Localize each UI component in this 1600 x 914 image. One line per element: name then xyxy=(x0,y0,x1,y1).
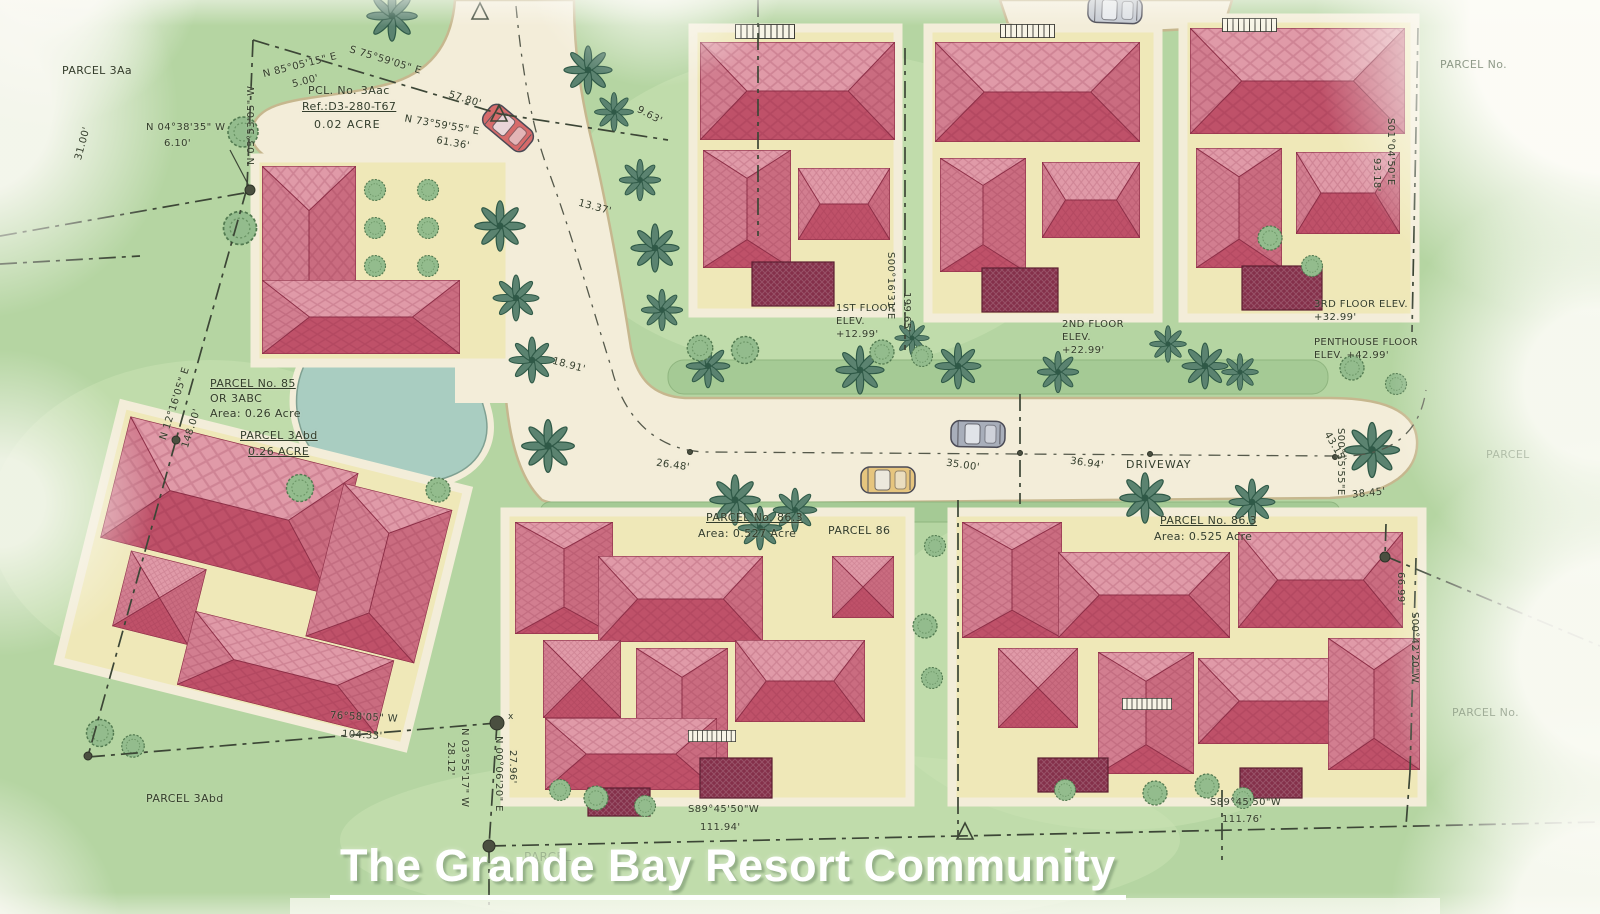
round-tree-icon xyxy=(1302,256,1323,277)
stairs-icon xyxy=(1222,18,1276,32)
parcel-label: PARCEL xyxy=(1486,448,1530,461)
parcel-label: Ref.:D3-280-T67 xyxy=(302,100,396,113)
parcel-label: PARCEL No. 85 xyxy=(210,377,296,390)
site-plan-map: PARCEL 3Aa N 03°53'05" W 31.00' N 85°05'… xyxy=(0,0,1600,914)
palm-tree-icon xyxy=(367,0,417,41)
round-tree-icon xyxy=(913,614,937,638)
palm-tree-icon xyxy=(1037,351,1078,392)
palm-tree-icon xyxy=(631,224,679,272)
round-tree-icon xyxy=(550,780,571,801)
dimension-label: 28.12' xyxy=(445,742,456,776)
parcel-label: Area: 0.527 Acre xyxy=(698,527,796,540)
floor-elevation-label: PENTHOUSE FLOOR ELEV. +42.99' xyxy=(1314,336,1434,362)
round-tree-icon xyxy=(1143,781,1167,805)
building-roof xyxy=(703,150,791,268)
round-tree-icon xyxy=(912,346,933,367)
round-tree-icon xyxy=(365,218,386,239)
building-roof xyxy=(940,158,1026,272)
building-roof xyxy=(1058,552,1230,638)
dimension-label: 93.18' xyxy=(1371,158,1382,192)
parcel-label: Area: 0.525 Acre xyxy=(1154,530,1252,543)
parcel-label: PCL. No. 3Aac xyxy=(308,84,390,97)
car-icon xyxy=(861,467,915,493)
bearing-label: N 03°53'05" W xyxy=(246,86,257,165)
stairs-icon xyxy=(736,24,795,39)
palm-tree-icon xyxy=(641,289,682,330)
parcel-label: OR 3ABC xyxy=(210,392,262,405)
round-tree-icon xyxy=(925,536,946,557)
parcel-label: PARCEL No. 86.3 xyxy=(706,511,803,524)
bearing-label: S00°16'31"E xyxy=(885,252,896,320)
building-roof xyxy=(1042,162,1140,238)
site-plan-drawing xyxy=(0,0,1600,914)
building-roof xyxy=(798,168,890,240)
dimension-label: 66.99' xyxy=(1395,572,1406,606)
palm-tree-icon xyxy=(935,343,981,389)
round-tree-icon xyxy=(732,337,759,364)
round-tree-icon xyxy=(1055,780,1076,801)
palm-tree-icon xyxy=(595,93,634,132)
dimension-label: 27.96' xyxy=(507,750,518,784)
round-tree-icon xyxy=(224,212,257,245)
building-roof xyxy=(700,42,895,140)
palm-tree-icon xyxy=(522,420,575,473)
parcel-label: PARCEL 3Aa xyxy=(62,64,132,77)
bearing-label: S89°45'50"W xyxy=(688,804,759,815)
parcel-label: PARCEL No. xyxy=(1440,58,1507,71)
floor-elevation-label: 3RD FLOOR ELEV. +32.99' xyxy=(1314,298,1409,324)
dimension-label: 111.94' xyxy=(700,822,741,833)
building-roof xyxy=(1098,652,1194,774)
bearing-label: S01°04'50"E xyxy=(1385,118,1396,186)
round-tree-icon xyxy=(635,796,656,817)
building-roof xyxy=(735,640,865,722)
page-bottom-strip xyxy=(290,898,1440,914)
building-roof xyxy=(262,280,460,354)
parcel-label: PARCEL No. 86.3 xyxy=(1160,514,1257,527)
car-icon xyxy=(1088,0,1143,24)
dimension-label: 104.33' xyxy=(342,729,383,742)
parcel-label: PARCEL 3Abd xyxy=(240,429,318,442)
round-tree-icon xyxy=(418,218,439,239)
stair-block xyxy=(982,268,1058,312)
palm-tree-icon xyxy=(509,337,555,383)
building-roof xyxy=(1196,148,1282,268)
parcel-label: 0.26 ACRE xyxy=(248,445,309,458)
bearing-label: N 03°55'17" W xyxy=(459,728,470,807)
palm-tree-icon xyxy=(475,201,525,251)
palm-tree-icon xyxy=(1222,354,1259,391)
building-roof xyxy=(1190,28,1405,134)
round-tree-icon xyxy=(365,256,386,277)
dimension-label: 111.76' xyxy=(1222,814,1263,825)
round-tree-icon xyxy=(584,786,608,810)
round-tree-icon xyxy=(87,720,114,747)
parcel-label: 0.02 ACRE xyxy=(314,118,381,131)
dimension-label: 6.10' xyxy=(164,138,191,149)
survey-mark-label: x xyxy=(508,712,514,722)
building-roof xyxy=(832,556,894,618)
building-roof xyxy=(598,556,763,642)
stairs-icon xyxy=(1122,698,1171,710)
bearing-label: S00°42'20"W xyxy=(1409,612,1420,683)
driveway-label: DRIVEWAY xyxy=(1126,458,1192,471)
palm-tree-icon xyxy=(493,275,539,321)
stair-block xyxy=(700,758,772,798)
round-tree-icon xyxy=(287,475,314,502)
round-tree-icon xyxy=(687,335,713,361)
building-roof xyxy=(543,640,621,718)
parcel-label: Area: 0.26 Acre xyxy=(210,407,301,420)
palm-tree-icon xyxy=(773,488,817,532)
round-tree-icon xyxy=(1386,374,1407,395)
palm-tree-icon xyxy=(619,159,660,200)
round-tree-icon xyxy=(426,478,450,502)
palm-tree-icon xyxy=(1150,326,1187,363)
palm-tree-icon xyxy=(1182,343,1228,389)
stairs-icon xyxy=(688,730,735,742)
car-icon xyxy=(951,421,1005,448)
floor-elevation-label: 2ND FLOOR ELEV. +22.99' xyxy=(1062,318,1126,357)
building-roof xyxy=(935,42,1140,142)
palm-tree-icon xyxy=(1345,423,1400,478)
round-tree-icon xyxy=(365,180,386,201)
parcel-label: PARCEL No. xyxy=(1452,706,1519,719)
round-tree-icon xyxy=(418,180,439,201)
building-roof xyxy=(962,522,1062,638)
palm-tree-icon xyxy=(564,46,612,94)
building-roof xyxy=(998,648,1078,728)
round-tree-icon xyxy=(922,668,943,689)
bearing-label: S89°45'50"W xyxy=(1210,797,1281,808)
building-roof xyxy=(545,718,717,790)
bearing-label: N 04°38'35" W xyxy=(146,122,225,133)
round-tree-icon xyxy=(418,256,439,277)
dimension-label: 199.65' xyxy=(901,292,912,333)
round-tree-icon xyxy=(870,340,894,364)
building-roof xyxy=(1238,532,1403,628)
parcel-label: PARCEL 3Abd xyxy=(146,792,224,805)
building-roof xyxy=(1328,638,1420,770)
stair-block xyxy=(752,262,834,306)
bearing-label: N 00°06'20" E xyxy=(493,736,504,812)
parcel-label: PARCEL 86 xyxy=(828,524,890,537)
map-title: The Grande Bay Resort Community xyxy=(330,840,1126,900)
round-tree-icon xyxy=(1195,774,1219,798)
round-tree-icon xyxy=(1258,226,1282,250)
stairs-icon xyxy=(1000,24,1054,38)
